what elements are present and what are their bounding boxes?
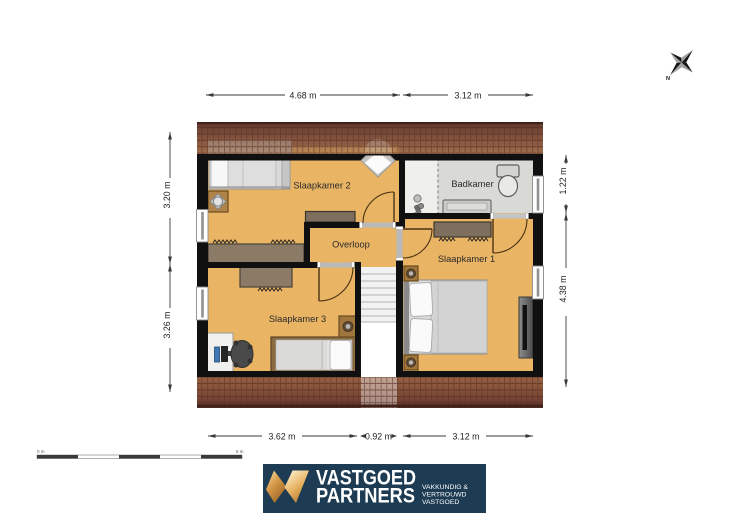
svg-text:0.92 m: 0.92 m	[365, 432, 392, 442]
svg-text:Slaapkamer 2: Slaapkamer 2	[293, 181, 350, 191]
svg-text:3.12 m: 3.12 m	[455, 91, 482, 101]
svg-text:3.12 m: 3.12 m	[453, 432, 480, 442]
svg-text:4.38 m: 4.38 m	[558, 276, 568, 303]
svg-text:PARTNERS: PARTNERS	[316, 485, 415, 508]
svg-text:0 m: 0 m	[37, 449, 45, 454]
svg-text:1.22 m: 1.22 m	[558, 168, 568, 195]
svg-text:VAKKUNDIG &: VAKKUNDIG &	[422, 484, 468, 491]
svg-text:VERTROUWD: VERTROUWD	[422, 492, 467, 499]
svg-text:VASTGOED: VASTGOED	[422, 499, 459, 506]
svg-text:5 m: 5 m	[236, 449, 244, 454]
svg-text:4.68 m: 4.68 m	[290, 91, 317, 101]
svg-text:N: N	[666, 76, 670, 82]
svg-text:3.26 m: 3.26 m	[162, 312, 172, 339]
svg-text:Badkamer: Badkamer	[451, 179, 493, 189]
svg-text:Overloop: Overloop	[332, 240, 370, 250]
svg-text:3.62 m: 3.62 m	[269, 432, 296, 442]
svg-text:Slaapkamer 1: Slaapkamer 1	[438, 254, 495, 264]
svg-text:Slaapkamer 3: Slaapkamer 3	[269, 314, 326, 324]
svg-text:3.20 m: 3.20 m	[162, 182, 172, 209]
